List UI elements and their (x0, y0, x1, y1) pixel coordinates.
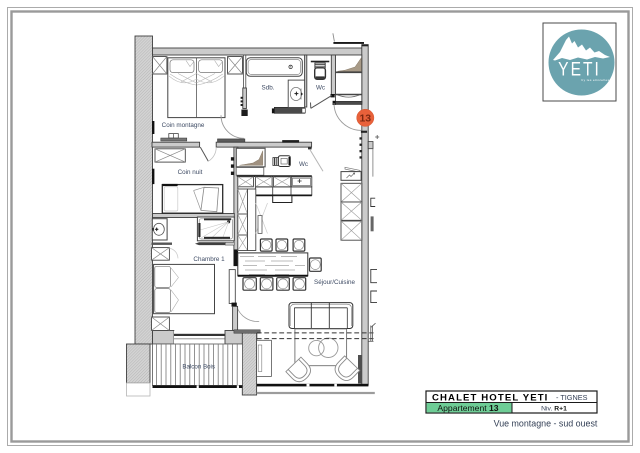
svg-text:Niv. R+1: Niv. R+1 (541, 406, 567, 413)
svg-text:Sdb.: Sdb. (262, 85, 275, 92)
svg-text:- TIGNES: - TIGNES (556, 393, 588, 402)
svg-text:CHALET HOTEL YETI: CHALET HOTEL YETI (432, 392, 548, 403)
svg-text:Coin montagne: Coin montagne (162, 122, 205, 129)
svg-text:by les etincelles: by les etincelles (582, 78, 610, 82)
svg-text:Wc: Wc (316, 85, 325, 92)
svg-text:Appartement 13: Appartement 13 (437, 403, 498, 413)
svg-text:YETI: YETI (558, 58, 601, 80)
svg-text:Coin nuit: Coin nuit (178, 169, 203, 176)
svg-text:Balcon Bois: Balcon Bois (182, 364, 215, 371)
svg-text:Séjour/Cuisine: Séjour/Cuisine (314, 279, 355, 286)
svg-text:Vue montagne - sud ouest: Vue montagne - sud ouest (494, 418, 598, 428)
svg-text:Wc: Wc (299, 161, 308, 168)
svg-text:Chambre 1: Chambre 1 (193, 256, 225, 263)
svg-text:13: 13 (359, 113, 371, 125)
